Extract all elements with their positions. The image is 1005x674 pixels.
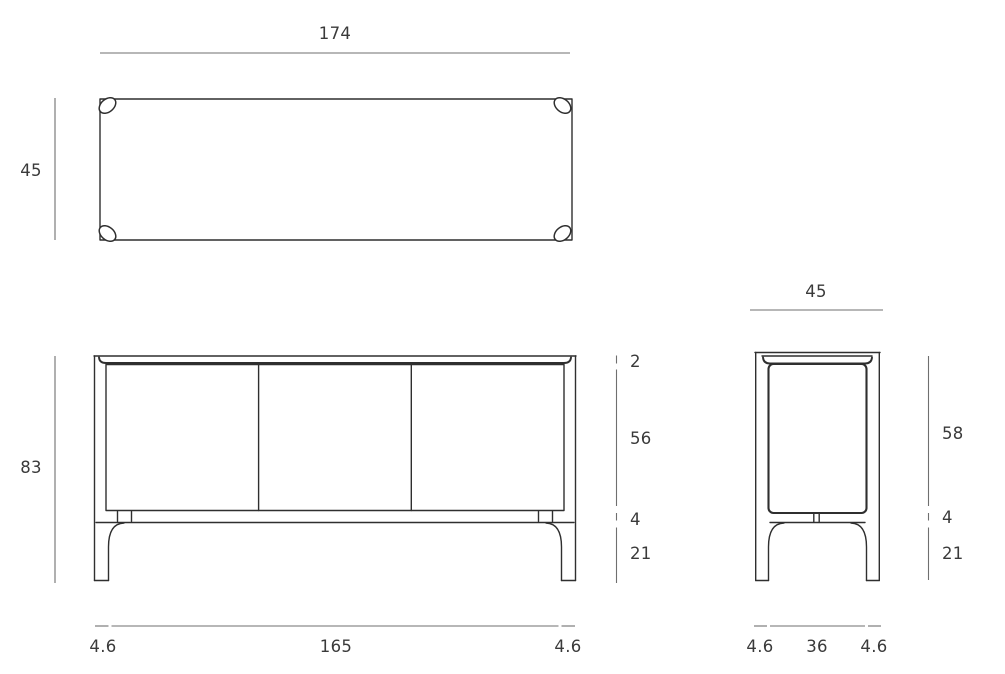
top-view: 174 45 (20, 24, 574, 244)
side-view-slab-underside (763, 358, 872, 364)
front-view-leg-label: 21 (630, 544, 652, 563)
front-view: 83 2 56 4 21 4.6 16 (20, 352, 651, 656)
side-view-rail-label: 4 (942, 508, 953, 527)
side-view-foot-left-label: 4.6 (746, 637, 773, 656)
side-view-foot-right-label: 4.6 (860, 637, 887, 656)
front-view-height-label: 83 (20, 458, 42, 477)
side-view-leg-label: 21 (942, 544, 964, 563)
top-view-leg-top-right (551, 95, 574, 117)
front-view-left-leg-inner (109, 523, 125, 581)
side-view-body-depth-label: 36 (806, 637, 828, 656)
front-view-top-slab-underside (99, 358, 571, 364)
front-view-body-width-label: 165 (320, 637, 352, 656)
side-view-body-height-label: 58 (942, 424, 964, 443)
top-view-tabletop-outline (100, 99, 572, 240)
side-view-side-panel (769, 364, 867, 513)
side-view: 45 58 4 21 4.6 36 4.6 (746, 282, 963, 656)
front-view-doors-outline (106, 365, 564, 511)
drawing-canvas: 174 45 83 (0, 0, 1005, 674)
front-view-top-thickness-label: 2 (630, 352, 641, 371)
front-view-rail-label: 4 (630, 510, 641, 529)
side-view-right-leg-inner (851, 523, 867, 581)
front-view-right-leg-inner (546, 523, 562, 581)
front-view-door-height-label: 56 (630, 429, 652, 448)
top-view-width-label: 174 (319, 24, 351, 43)
side-view-depth-label: 45 (805, 282, 827, 301)
side-view-left-leg-inner (769, 523, 785, 581)
front-view-foot-right-label: 4.6 (554, 637, 581, 656)
top-view-leg-bottom-right (551, 223, 574, 245)
sideboard-dimension-drawing: 174 45 83 (0, 0, 1005, 674)
top-view-depth-label: 45 (20, 161, 42, 180)
front-view-foot-left-label: 4.6 (89, 637, 116, 656)
